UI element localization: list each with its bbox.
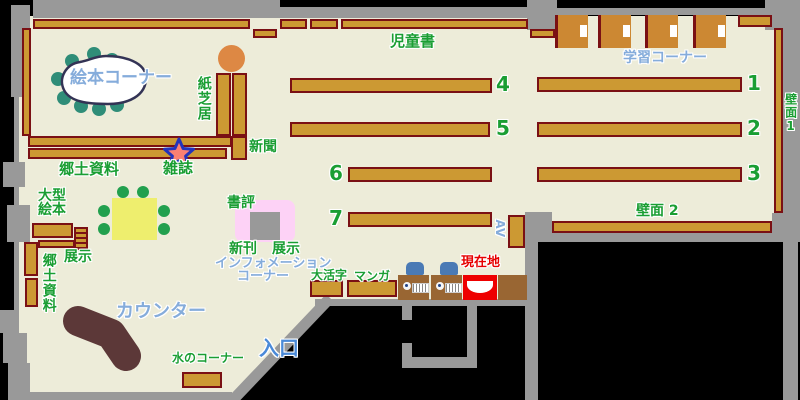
label-kyodo-shiryo-side: 郷土資料 [41, 253, 56, 313]
shelf-number-6: 6 [329, 163, 343, 184]
reading-table [112, 198, 157, 240]
label-daikatsuji: 大活字 [311, 269, 347, 282]
label-hekimen-1: 壁面1 [784, 93, 797, 134]
pc-desk-1 [398, 275, 429, 300]
label-ehon-corner: 絵本コーナー [70, 70, 172, 88]
label-tenji-left: 展示 [64, 250, 92, 265]
label-zasshi: 雑誌 [163, 161, 193, 177]
label-genzaichi: 現在地 [461, 256, 500, 270]
library-floor-map: 絵本コーナー 紙芝居 新聞 雑誌 郷土資料 児童書 学習コーナー 壁面1 壁面 … [0, 0, 800, 400]
pc-mouse-icon [403, 282, 411, 290]
display-table [250, 212, 280, 240]
label-kamishibai: 紙芝居 [196, 76, 211, 121]
label-ogata-ehon-2: 絵本 [38, 203, 66, 218]
chair [158, 205, 170, 217]
label-shinbun: 新聞 [249, 140, 277, 155]
label-counter: カウンター [116, 303, 206, 322]
label-mizu-corner: 水のコーナー [172, 352, 244, 365]
shelf-number-4: 4 [496, 74, 510, 95]
label-shinkan: 新刊 [229, 242, 257, 257]
pc-mouse-icon [436, 282, 444, 290]
chair [137, 186, 149, 198]
pc-desk-2 [431, 275, 462, 300]
counter-shape [78, 321, 126, 356]
shelf-number-7: 7 [329, 208, 343, 229]
shelf-number-2: 2 [747, 118, 761, 139]
pc-chair-1 [406, 262, 424, 275]
chair [158, 223, 170, 235]
label-jidosho: 児童書 [390, 34, 435, 50]
shelf-number-5: 5 [496, 118, 510, 139]
you-are-here-icon [463, 275, 497, 300]
label-av: AV [494, 219, 507, 237]
label-hekimen-2: 壁面 2 [636, 204, 679, 219]
label-shohyo: 書評 [227, 196, 255, 211]
chair [98, 205, 110, 217]
pc-keyboard-icon [445, 283, 462, 293]
label-kyodo-shiryo: 郷土資料 [59, 162, 119, 178]
pc-chair-2 [440, 262, 458, 275]
label-manga: マンガ [354, 270, 390, 283]
pc-keyboard-icon [412, 283, 429, 293]
shelf-number-1: 1 [747, 73, 761, 94]
label-iriguchi: 入口 [259, 338, 299, 359]
label-gakushu-corner: 学習コーナー [623, 51, 707, 66]
shelf-number-3: 3 [747, 163, 761, 184]
chair [117, 186, 129, 198]
you-are-here-box [463, 275, 497, 300]
chair [98, 223, 110, 235]
label-tenji-right: 展示 [272, 242, 300, 257]
label-information-2: コーナー [237, 270, 289, 284]
pc-desk-3 [498, 275, 527, 300]
